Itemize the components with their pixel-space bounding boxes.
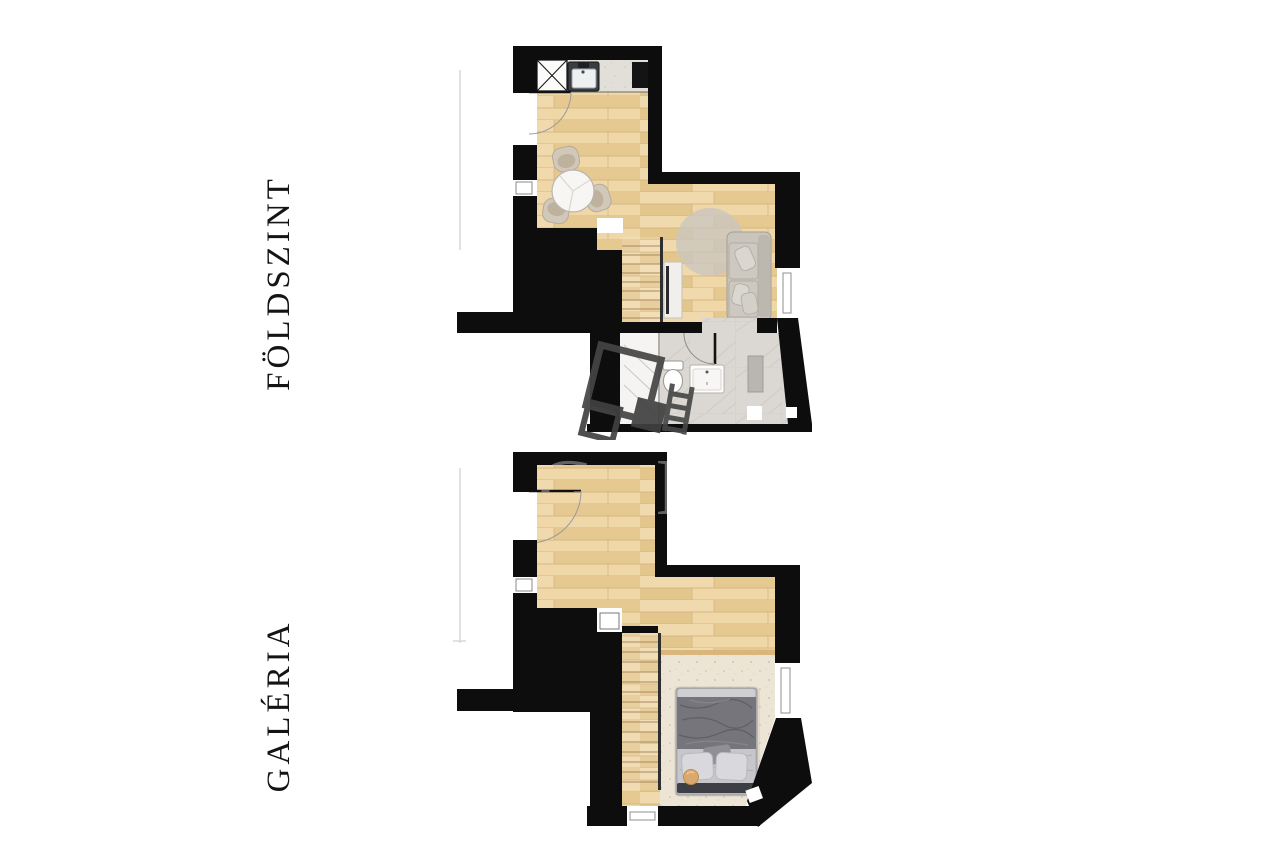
tv-cabinet [664,262,682,318]
floor-plan-galeria: G D [440,445,830,840]
stool [684,770,699,785]
kitchen-sink-icon [568,62,599,91]
duvet [677,697,756,749]
window-right [775,663,797,718]
wall-niche [747,406,762,420]
wall-opening-radiator [597,610,622,632]
floor-threshold [660,650,775,655]
pillow [715,752,747,781]
staircase [622,237,663,332]
window-left [513,180,537,196]
stair-passage-opening [597,218,623,233]
staircase [622,633,661,790]
headboard [678,689,755,698]
hob [537,60,567,91]
floor-plan-foldszint [440,20,830,440]
floor-label-galeria: GALÉRIA [259,556,299,853]
wall-niche [786,407,797,418]
watermark-letters: G D [538,445,734,532]
window-right [777,268,798,318]
dining-table [552,170,594,212]
floor-label-foldszint: FÖLDSZINT [259,133,299,433]
refrigerator [632,62,649,88]
window-bottom [627,806,658,826]
washbasin-icon [690,365,724,393]
window-left [513,577,537,593]
balcony-line [453,468,466,643]
sofa [727,232,771,320]
floor-plan-sheet: FÖLDSZINT GALÉRIA [0,0,1280,853]
shower-column [748,356,763,392]
